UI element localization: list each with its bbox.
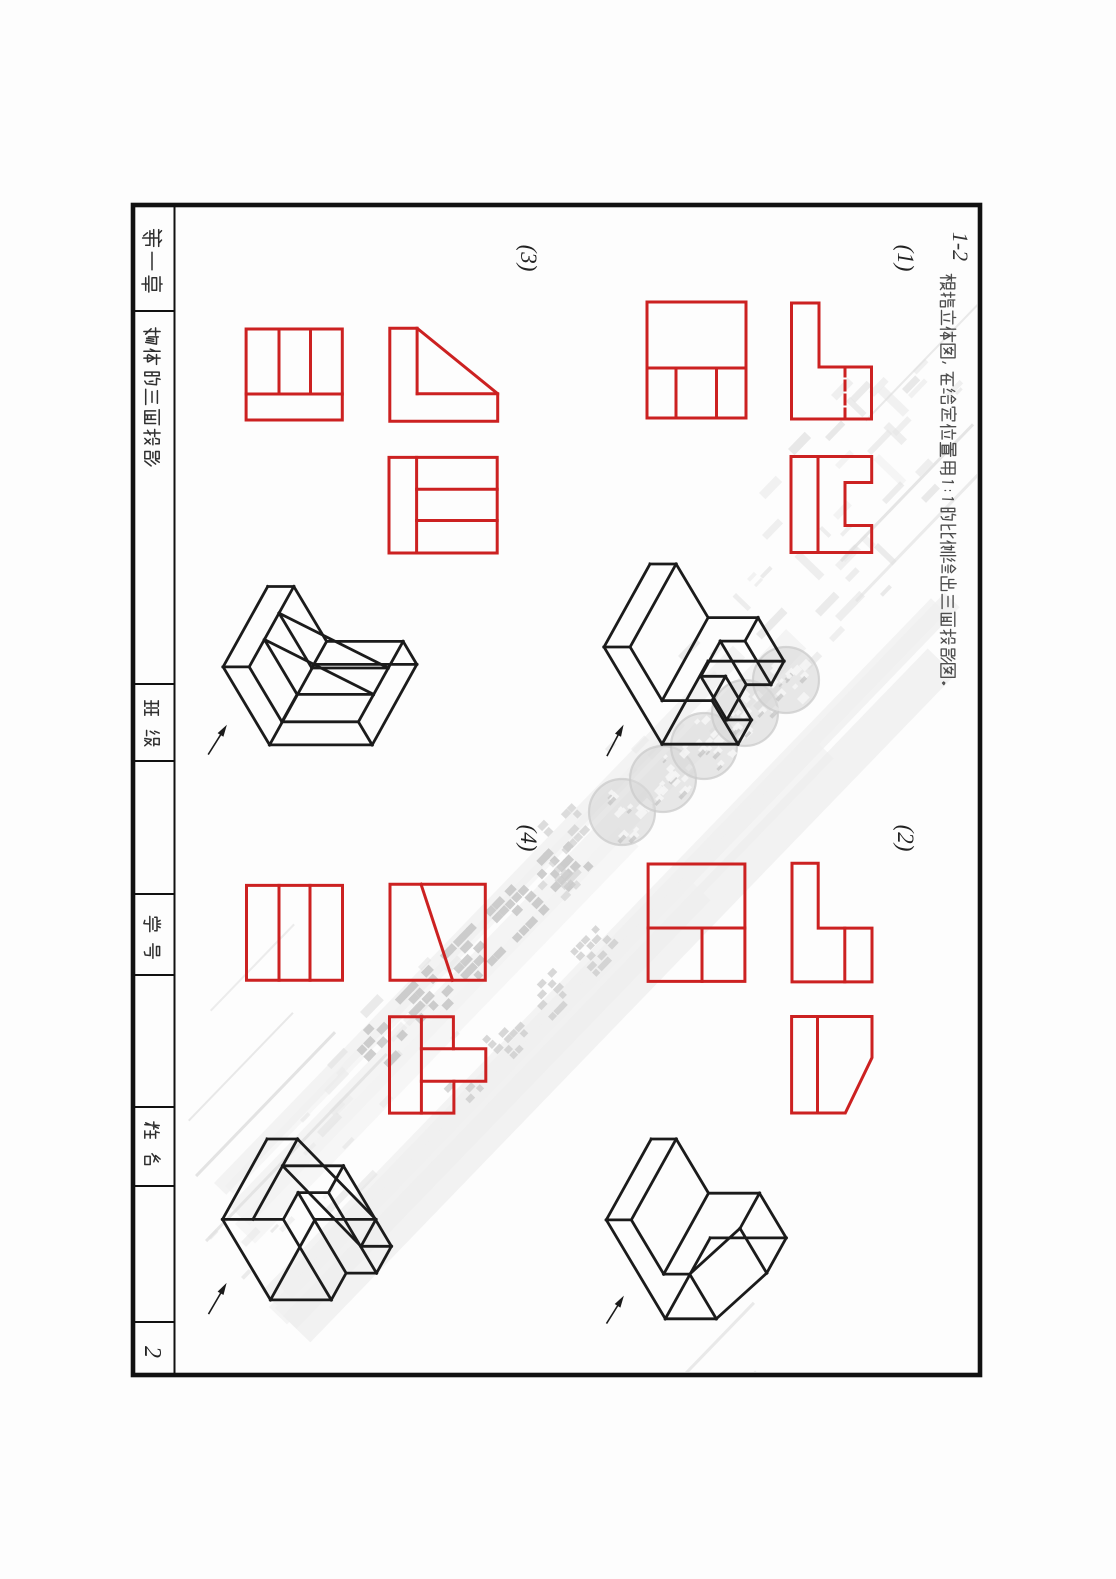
svg-text:(1): (1) — [893, 245, 918, 272]
svg-text:(2): (2) — [893, 825, 918, 852]
svg-text:1-2: 1-2 — [948, 232, 973, 261]
svg-text:2: 2 — [139, 1346, 165, 1358]
svg-text:(3): (3) — [516, 245, 541, 272]
svg-text:(4): (4) — [516, 825, 541, 852]
